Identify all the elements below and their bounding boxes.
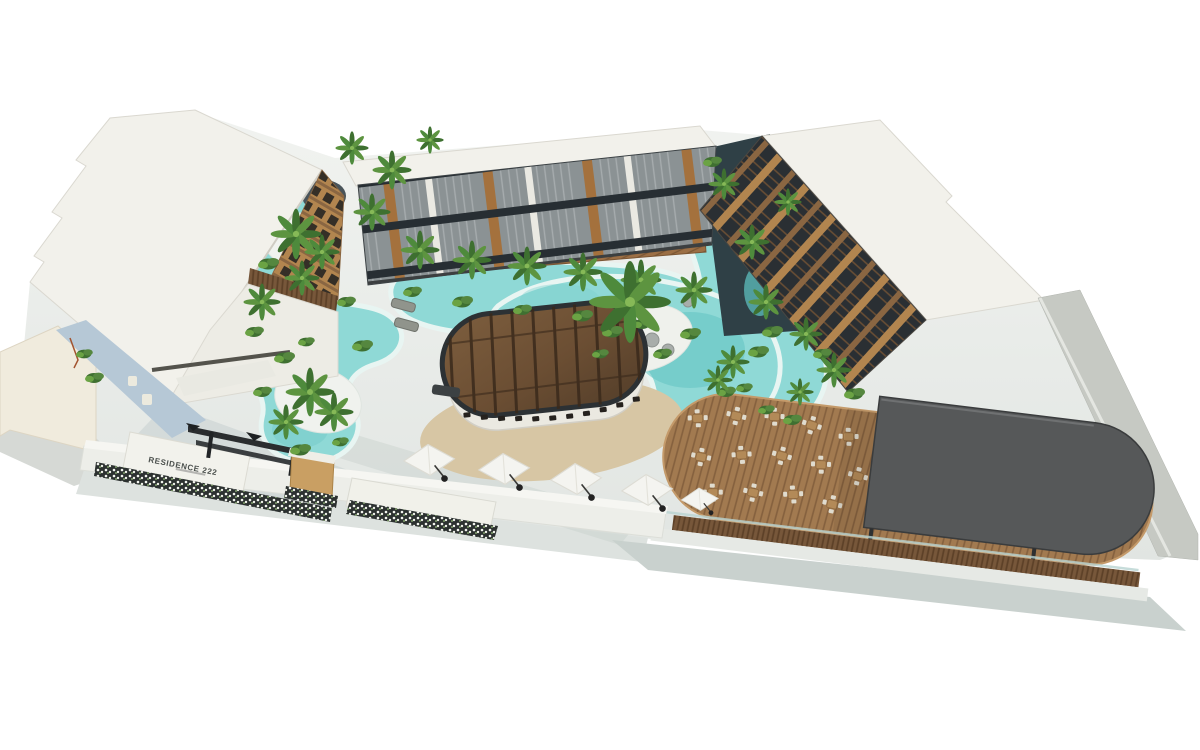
resort-rendering: RESIDENCE 222 <box>0 0 1200 750</box>
planter-pot <box>142 394 152 405</box>
entrance-pillar <box>284 448 338 508</box>
planter-pot <box>128 376 137 386</box>
render-canvas: RESIDENCE 222 <box>0 0 1200 750</box>
